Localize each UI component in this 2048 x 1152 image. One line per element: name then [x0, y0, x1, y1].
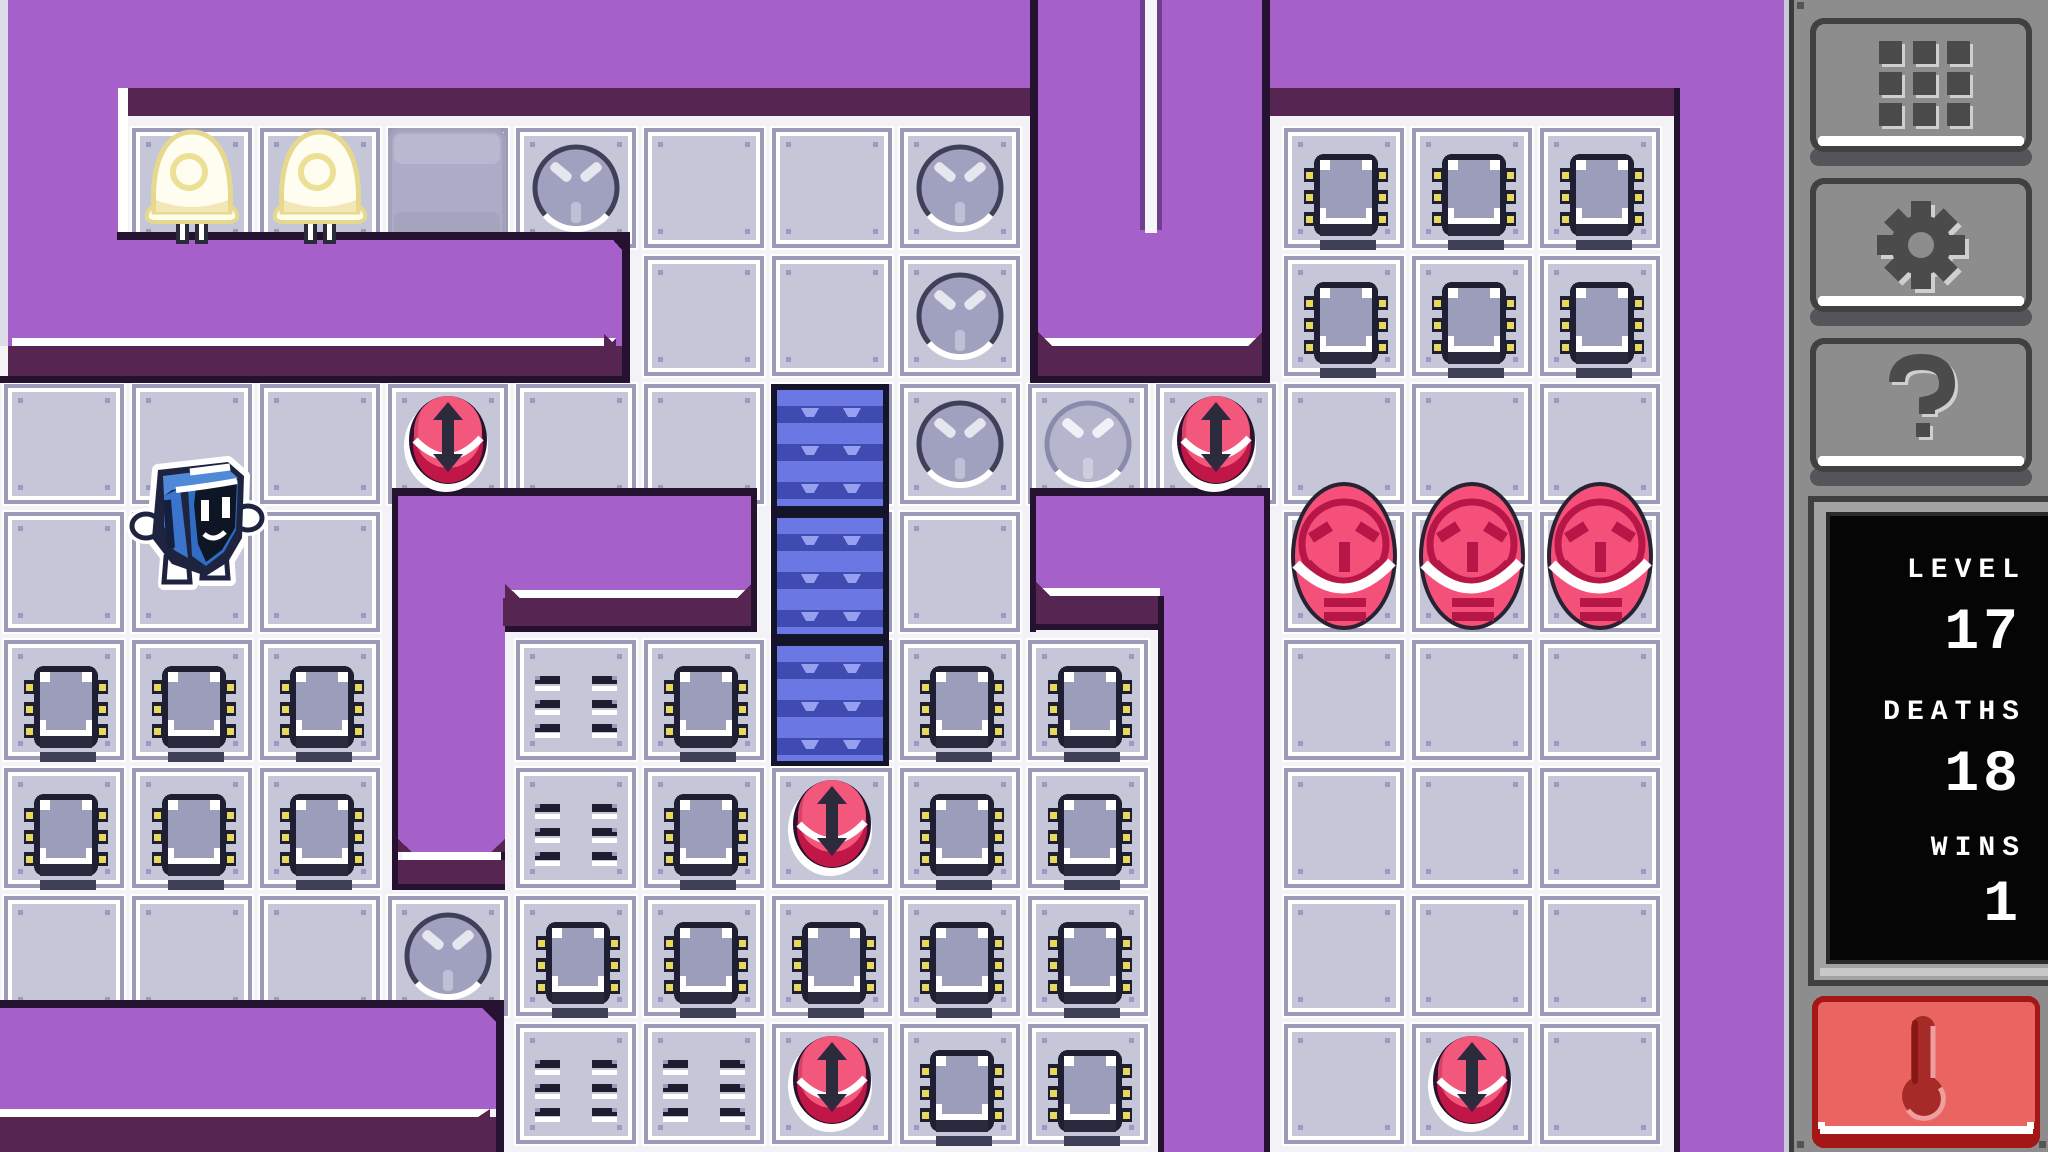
- svg-text:18: 18: [1944, 743, 2022, 808]
- svg-text:17: 17: [1944, 601, 2022, 666]
- svg-text:LEVEL: LEVEL: [1907, 555, 2026, 586]
- svg-text:1: 1: [1983, 873, 2022, 938]
- svg-text:WINS: WINS: [1931, 833, 2026, 864]
- svg-text:DEATHS: DEATHS: [1883, 697, 2026, 728]
